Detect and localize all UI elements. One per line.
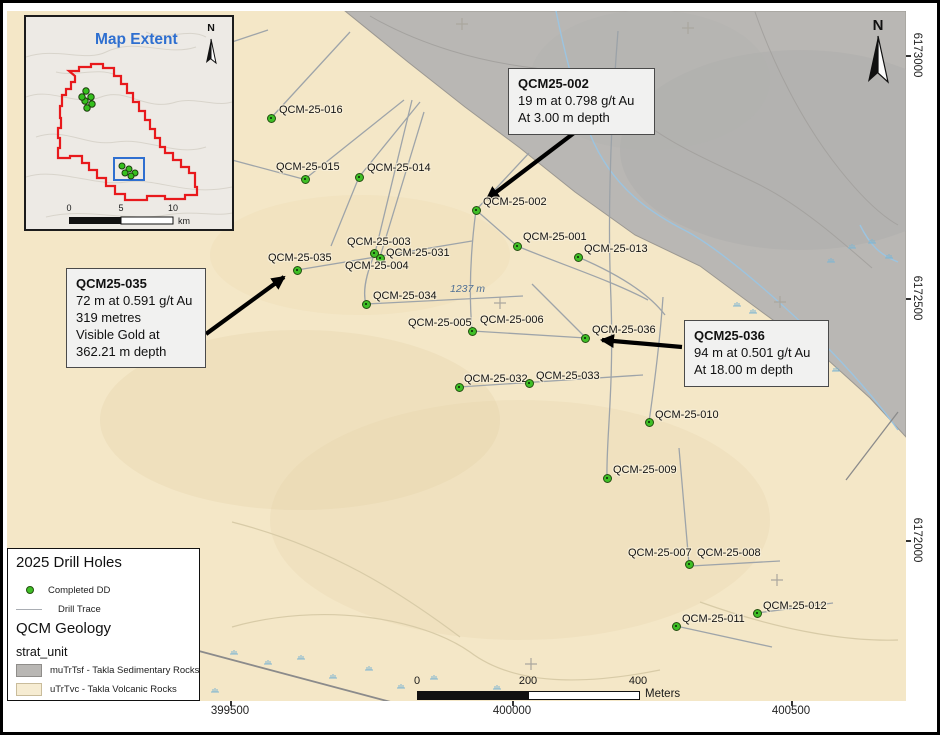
callout-qcm25-002: QCM25-002 19 m at 0.798 g/t AuAt 3.00 m … <box>508 68 655 135</box>
north-arrow: N <box>856 17 900 91</box>
inset-scalebar <box>69 217 173 224</box>
northing-label: 6172000 <box>911 518 923 563</box>
inset-scale-unit: km <box>178 216 190 226</box>
completed-dd-symbol <box>26 586 34 594</box>
inset-title: Map Extent <box>95 31 178 49</box>
scalebar-unit: Meters <box>645 688 680 700</box>
legend-drill-title: 2025 Drill Holes <box>16 554 122 571</box>
spot-elevation-label: 1237 m <box>450 283 485 295</box>
legend-item-label: muTrTsf - Takla Sedimentary Rocks <box>50 665 199 676</box>
callout-body: 72 m at 0.591 g/t Au319 metresVisible Go… <box>76 293 196 361</box>
legend-item-volcanic: uTrTvc - Takla Volcanic Rocks <box>16 683 177 696</box>
callout-qcm25-035: QCM25-035 72 m at 0.591 g/t Au319 metres… <box>66 268 206 368</box>
volcanic-swatch <box>16 683 42 696</box>
scalebar-0: 0 <box>414 675 420 687</box>
easting-label: 399500 <box>211 705 249 717</box>
map-figure: QCM-25-016QCM-25-015QCM-25-014QCM-25-002… <box>0 0 940 735</box>
legend-item-drill-trace: Drill Trace <box>16 604 101 615</box>
callout-title: QCM25-002 <box>518 76 645 93</box>
legend-item-completed-dd: Completed DD <box>16 585 110 596</box>
legend-item-label: Completed DD <box>48 585 110 596</box>
callout-body: 94 m at 0.501 g/t AuAt 18.00 m depth <box>694 345 819 379</box>
callout-title: QCM25-035 <box>76 276 196 293</box>
scalebar-400: 400 <box>629 675 647 687</box>
legend-panel: 2025 Drill Holes Completed DD Drill Trac… <box>7 548 200 701</box>
drill-trace-symbol <box>16 609 42 610</box>
inset-scale-5: 5 <box>118 203 123 213</box>
inset-north-label: N <box>203 22 219 34</box>
inset-scale-0: 0 <box>66 203 71 213</box>
inset-scale-10: 10 <box>168 203 178 213</box>
easting-label: 400000 <box>493 705 531 717</box>
inset-map: 0 5 10 km Map Extent N <box>24 15 234 231</box>
callout-qcm25-036: QCM25-036 94 m at 0.501 g/t AuAt 18.00 m… <box>684 320 829 387</box>
callout-title: QCM25-036 <box>694 328 819 345</box>
legend-item-label: uTrTvc - Takla Volcanic Rocks <box>50 684 177 695</box>
callout-body: 19 m at 0.798 g/t AuAt 3.00 m depth <box>518 93 645 127</box>
north-arrow-glyph <box>856 34 900 86</box>
sedimentary-swatch <box>16 664 42 677</box>
easting-label: 400500 <box>772 705 810 717</box>
legend-geology-title: QCM Geology <box>16 620 111 637</box>
scalebar-200: 200 <box>519 675 537 687</box>
northing-label: 6173000 <box>911 33 923 78</box>
scalebar-bar <box>417 691 640 700</box>
legend-strat-unit: strat_unit <box>16 645 67 659</box>
legend-item-sedimentary: muTrTsf - Takla Sedimentary Rocks <box>16 664 199 677</box>
northing-label: 6172500 <box>911 276 923 321</box>
north-label: N <box>856 17 900 34</box>
legend-item-label: Drill Trace <box>58 604 101 615</box>
